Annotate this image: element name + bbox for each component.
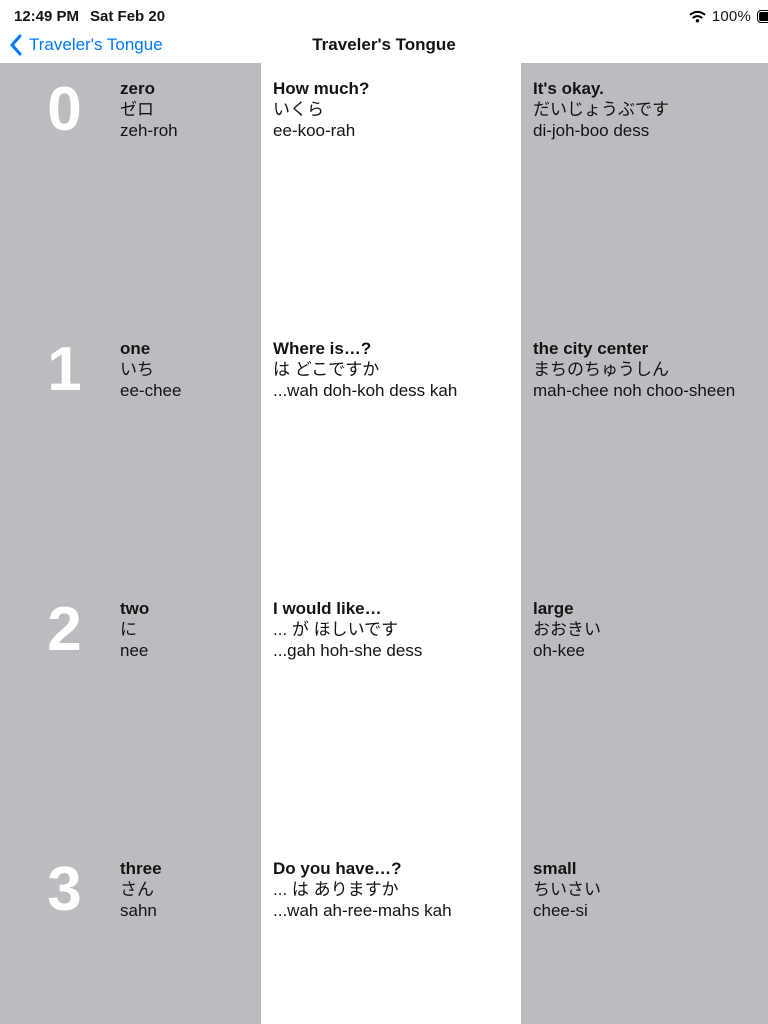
entry-english: Do you have…? xyxy=(273,858,511,879)
number-cell[interactable]: 0zeroゼロzeh-roh xyxy=(0,63,261,323)
entry-japanese: は どこですか xyxy=(273,359,511,380)
row-number: 2 xyxy=(18,599,110,661)
entry-pronunciation: ee-koo-rah xyxy=(273,120,511,141)
back-button-label: Traveler's Tongue xyxy=(29,35,163,55)
status-time: 12:49 PM xyxy=(14,8,79,25)
phrase-cell[interactable]: How much?いくらee-koo-rah xyxy=(261,63,521,323)
phrase-entry: Where is…?は どこですか...wah doh-koh dess kah xyxy=(273,338,511,401)
entry-english: zero xyxy=(120,78,178,99)
vocab-entry: It's okay.だいじょうぶですdi-joh-boo dess xyxy=(533,78,758,141)
entry-japanese: ... が ほしいです xyxy=(273,619,511,640)
entry-english: one xyxy=(120,338,181,359)
entry-japanese: さん xyxy=(120,879,162,900)
entry-japanese: ちいさい xyxy=(533,879,758,900)
number-entry: threeさんsahn xyxy=(120,858,162,921)
entry-english: the city center xyxy=(533,338,758,359)
chevron-left-icon xyxy=(9,34,22,56)
number-cell[interactable]: 2twoにnee xyxy=(0,583,261,843)
entry-english: three xyxy=(120,858,162,879)
row-number: 3 xyxy=(18,859,110,921)
phrase-entry: Do you have…?... は ありますか...wah ah-ree-ma… xyxy=(273,858,511,921)
vocab-entry: largeおおきいoh-kee xyxy=(533,598,758,661)
entry-pronunciation: ...gah hoh-she dess xyxy=(273,640,511,661)
entry-pronunciation: ee-chee xyxy=(120,380,181,401)
vocab-cell[interactable]: largeおおきいoh-kee xyxy=(521,583,768,843)
row-number: 0 xyxy=(18,79,110,141)
battery-icon xyxy=(757,10,768,23)
numbers-column: 0zeroゼロzeh-roh1oneいちee-chee2twoにnee3thre… xyxy=(0,63,261,1024)
entry-japanese: いくら xyxy=(273,99,511,120)
entry-japanese: いち xyxy=(120,359,181,380)
battery-percent: 100% xyxy=(712,8,751,25)
vocab-cell[interactable]: smallちいさいchee-si xyxy=(521,843,768,1024)
phrases-column: How much?いくらee-koo-rahWhere is…?は どこですか.… xyxy=(261,63,521,1024)
screen: 12:49 PM Sat Feb 20 100% Travele xyxy=(0,0,768,1024)
entry-pronunciation: mah-chee noh choo-sheen xyxy=(533,380,758,401)
status-bar: 12:49 PM Sat Feb 20 100% xyxy=(0,0,768,26)
number-cell[interactable]: 1oneいちee-chee xyxy=(0,323,261,583)
entry-english: large xyxy=(533,598,758,619)
entry-pronunciation: chee-si xyxy=(533,900,758,921)
vocab-cell[interactable]: It's okay.だいじょうぶですdi-joh-boo dess xyxy=(521,63,768,323)
status-left: 12:49 PM Sat Feb 20 xyxy=(14,8,165,25)
number-cell[interactable]: 3threeさんsahn xyxy=(0,843,261,1024)
phrase-grid: 0zeroゼロzeh-roh1oneいちee-chee2twoにnee3thre… xyxy=(0,63,768,1024)
wifi-icon xyxy=(689,10,706,23)
entry-english: It's okay. xyxy=(533,78,758,99)
entry-pronunciation: oh-kee xyxy=(533,640,758,661)
phrase-entry: How much?いくらee-koo-rah xyxy=(273,78,511,141)
entry-japanese: まちのちゅうしん xyxy=(533,359,758,380)
entry-japanese: だいじょうぶです xyxy=(533,99,758,120)
vocab-cell[interactable]: the city centerまちのちゅうしんmah-chee noh choo… xyxy=(521,323,768,583)
vocab-entry: smallちいさいchee-si xyxy=(533,858,758,921)
number-entry: zeroゼロzeh-roh xyxy=(120,78,178,141)
entry-pronunciation: sahn xyxy=(120,900,162,921)
vocab-entry: the city centerまちのちゅうしんmah-chee noh choo… xyxy=(533,338,758,401)
entry-english: How much? xyxy=(273,78,511,99)
entry-pronunciation: zeh-roh xyxy=(120,120,178,141)
number-entry: oneいちee-chee xyxy=(120,338,181,401)
navigation-bar: Traveler's Tongue Traveler's Tongue xyxy=(0,26,768,63)
phrase-entry: I would like…... が ほしいです...gah hoh-she d… xyxy=(273,598,511,661)
entry-english: small xyxy=(533,858,758,879)
vocab-column: It's okay.だいじょうぶですdi-joh-boo dessthe cit… xyxy=(521,63,768,1024)
phrase-cell[interactable]: I would like…... が ほしいです...gah hoh-she d… xyxy=(261,583,521,843)
number-entry: twoにnee xyxy=(120,598,149,661)
entry-pronunciation: ...wah doh-koh dess kah xyxy=(273,380,511,401)
entry-pronunciation: ...wah ah-ree-mahs kah xyxy=(273,900,511,921)
entry-japanese: ゼロ xyxy=(120,99,178,120)
phrase-cell[interactable]: Where is…?は どこですか...wah doh-koh dess kah xyxy=(261,323,521,583)
entry-pronunciation: nee xyxy=(120,640,149,661)
status-right: 100% xyxy=(689,8,768,25)
entry-japanese: ... は ありますか xyxy=(273,879,511,900)
entry-pronunciation: di-joh-boo dess xyxy=(533,120,758,141)
entry-english: I would like… xyxy=(273,598,511,619)
row-number: 1 xyxy=(18,339,110,401)
entry-english: Where is…? xyxy=(273,338,511,359)
entry-japanese: おおきい xyxy=(533,619,758,640)
phrase-cell[interactable]: Do you have…?... は ありますか...wah ah-ree-ma… xyxy=(261,843,521,1024)
entry-japanese: に xyxy=(120,619,149,640)
status-date: Sat Feb 20 xyxy=(90,8,165,25)
back-button[interactable]: Traveler's Tongue xyxy=(9,34,163,56)
entry-english: two xyxy=(120,598,149,619)
